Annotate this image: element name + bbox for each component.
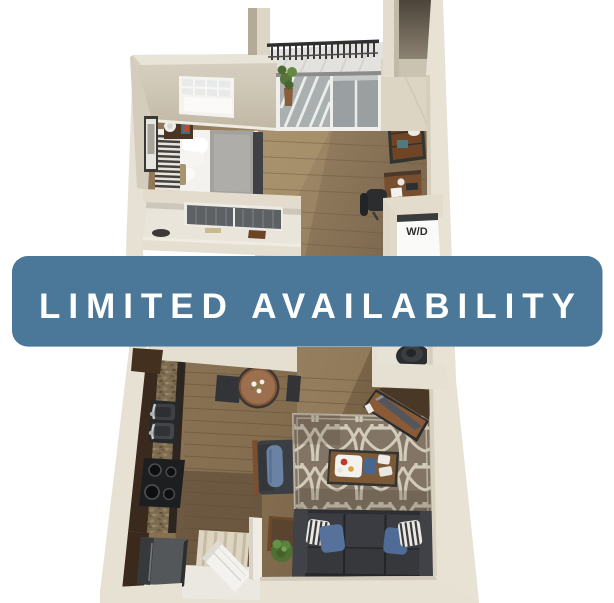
svg-text:W/D: W/D <box>406 226 427 238</box>
